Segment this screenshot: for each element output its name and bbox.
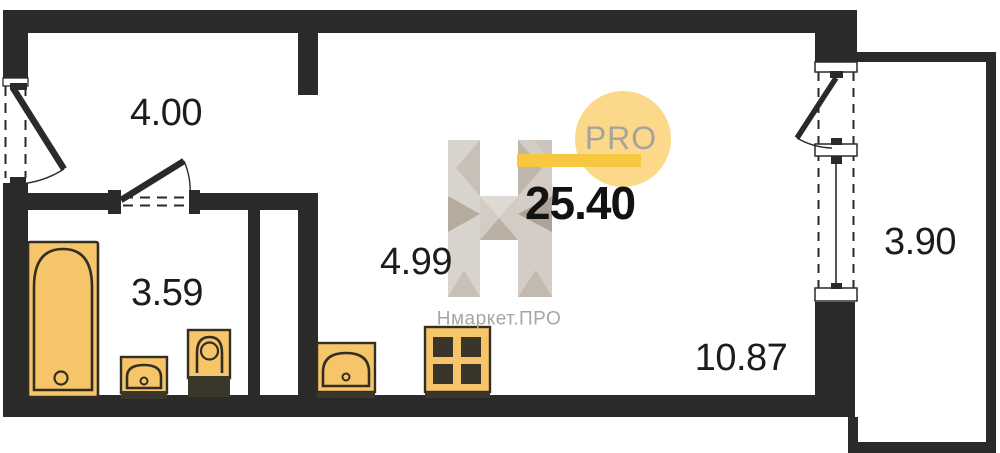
stove-icon (425, 327, 490, 398)
area-label-hallway: 4.00 (130, 94, 202, 132)
area-label-kitchen: 4.99 (380, 243, 452, 281)
wall-segment (848, 442, 996, 453)
wall-segment (815, 10, 857, 62)
kitchen-sink-icon (317, 343, 375, 398)
watermark-brand-name: Нмаркет.ПРО (437, 310, 561, 329)
bathroom-sink-icon (121, 357, 167, 399)
floor-plan-drawing (0, 0, 1000, 453)
watermark-pro-label: PRO (585, 122, 657, 154)
wall-segment (298, 210, 318, 395)
toilet-icon (188, 330, 230, 397)
wall-segment (189, 193, 318, 210)
area-label-bathroom: 3.59 (131, 274, 203, 312)
window-icon (815, 162, 857, 301)
bathtub-icon (28, 242, 98, 397)
wall-segment (8, 10, 857, 33)
wall-segment (298, 33, 318, 95)
wall-segment (857, 52, 996, 62)
wall-segment (3, 193, 117, 210)
entrance-door-icon (3, 78, 64, 184)
area-label-living: 10.87 (695, 339, 788, 377)
wall-segment (248, 210, 260, 395)
area-label-total: 25.40 (525, 180, 635, 226)
wall-segment (986, 52, 996, 453)
wall-segment (815, 302, 855, 417)
area-label-balcony: 3.90 (884, 223, 956, 261)
floor-plan-screenshot: 4.00 3.59 4.99 25.40 10.87 3.90 PRO Нмар… (0, 0, 1000, 453)
wall-segment (3, 10, 28, 78)
balcony-door-icon (797, 62, 857, 288)
wall-segment (3, 183, 28, 417)
bathroom-door-icon (121, 161, 190, 206)
wall-segment (108, 190, 121, 214)
